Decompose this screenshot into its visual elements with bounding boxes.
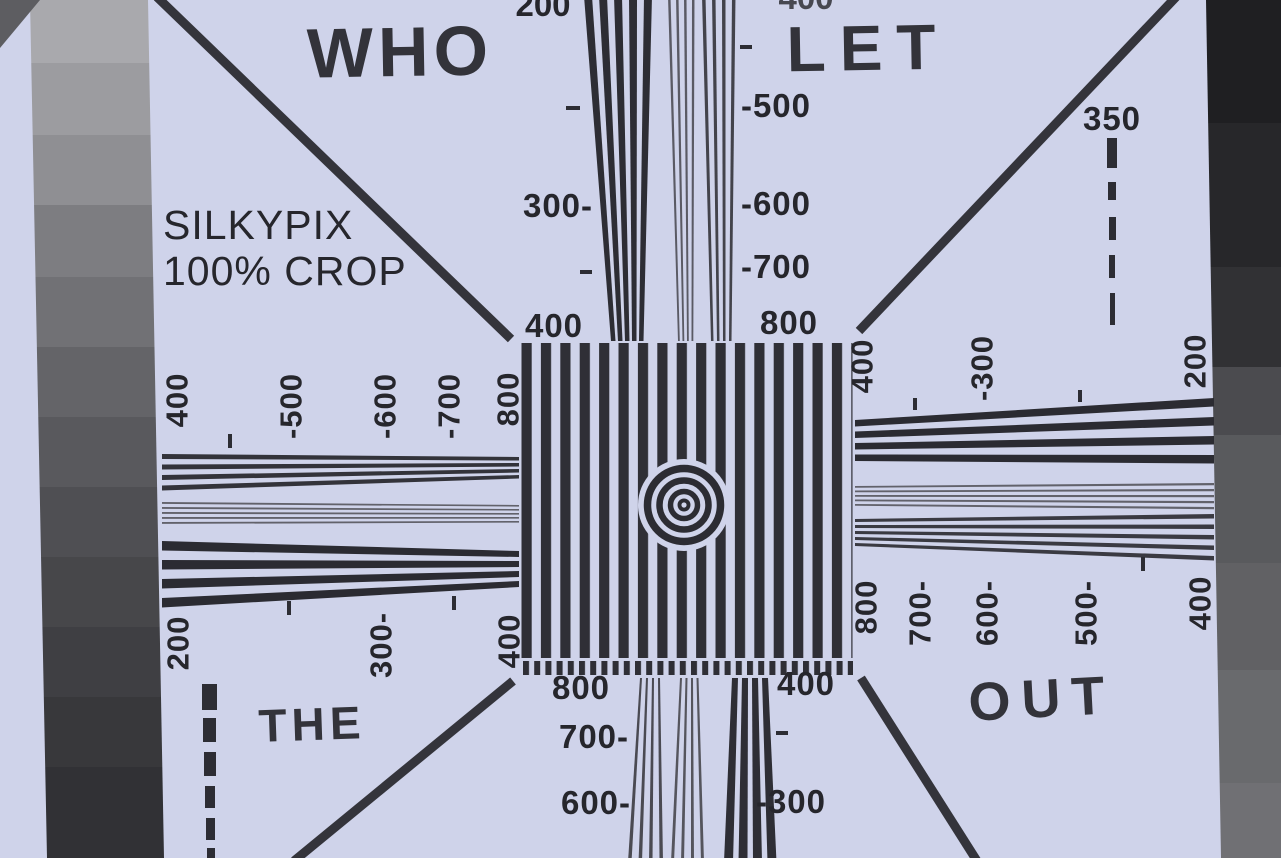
label-350: 350 <box>1083 100 1141 137</box>
label-leftwedge-top-700: -700 <box>432 373 467 439</box>
label-rightwedge-bottom-600: 600- <box>970 580 1005 646</box>
label-topscale-400: 400 <box>525 307 583 344</box>
caption-line2: 100% CROP <box>163 248 407 294</box>
label-rightwedge-top-300: -300 <box>965 335 1000 401</box>
label-top-clipped-200: 200 <box>515 0 570 23</box>
label-topscale-600: -600 <box>741 185 811 222</box>
label-leftwedge-top-500: -500 <box>274 373 309 439</box>
label-leftwedge-top-600: -600 <box>368 373 403 439</box>
label-leftwedge-bottom-300: 300- <box>364 612 399 678</box>
bullseye-center-dot <box>681 502 686 507</box>
label-bottomscale-700: 700- <box>559 718 629 755</box>
label-topscale-500: -500 <box>741 87 811 124</box>
test-chart-photo: 200 400 300- 400 -500 -600 -700 800 350 … <box>0 0 1281 858</box>
handwritten-let: LET <box>786 11 950 86</box>
label-leftwedge-bottom-400: 400 <box>492 614 527 669</box>
label-leftwedge-top-400: 400 <box>160 373 195 428</box>
gray-step <box>20 277 170 347</box>
label-topscale-800: 800 <box>760 304 818 341</box>
label-rightwedge-bottom-700: 700- <box>903 580 938 646</box>
gray-step <box>1195 0 1281 123</box>
label-rightwedge-bottom-500: 500- <box>1069 580 1104 646</box>
gray-step <box>20 205 170 277</box>
gray-step <box>20 417 170 487</box>
gray-step <box>20 347 170 417</box>
label-leftwedge-bottom-200: 200 <box>161 616 196 671</box>
caption-line1: SILKYPIX <box>163 202 353 248</box>
center-bar-square <box>522 343 854 675</box>
label-rightwedge-top-400: 400 <box>845 339 880 394</box>
label-bottomscale-600: 600- <box>561 784 631 821</box>
gray-step <box>20 557 170 627</box>
label-bottomscale-300: -300 <box>756 783 826 820</box>
label-rightwedge-top-200: 200 <box>1178 334 1213 389</box>
label-leftwedge-top-800: 800 <box>491 372 526 427</box>
label-rightwedge-bottom-800: 800 <box>849 580 884 635</box>
label-rightwedge-bottom-400: 400 <box>1183 576 1218 631</box>
gray-step <box>20 0 170 63</box>
label-bottomscale-800: 800 <box>552 669 610 706</box>
resolution-chart-svg: 200 400 300- 400 -500 -600 -700 800 350 … <box>0 0 1281 858</box>
gray-step <box>20 487 170 557</box>
handwritten-out: OUT <box>967 665 1117 733</box>
handwritten-who: WHO <box>306 11 493 92</box>
handwritten-the: THE <box>258 696 367 752</box>
label-topscale-700: -700 <box>741 248 811 285</box>
label-bottomscale-400: 400 <box>777 665 835 702</box>
gray-step <box>20 135 170 205</box>
gray-step <box>20 63 170 135</box>
label-topscale-300: 300- <box>523 187 593 224</box>
bullseye <box>638 459 730 551</box>
